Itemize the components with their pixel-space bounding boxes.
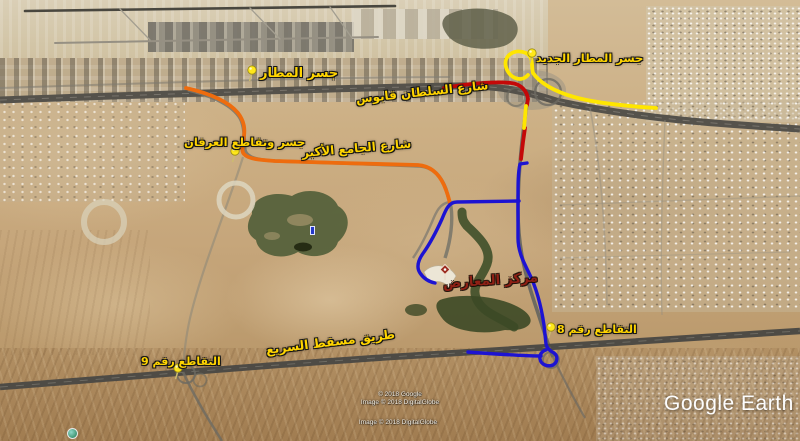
label-irfan-bridge-intersection: جسر وتقاطع العرفان: [184, 135, 305, 149]
attribution-line-1: © 2018 Google: [330, 391, 470, 399]
label-new-airport-bridge: جسر المطار الجديد: [536, 51, 643, 65]
map-attribution-secondary: Image © 2018 DigitalGlobe: [328, 419, 468, 427]
route-overlay: [0, 0, 800, 441]
route-red-south-segment: [521, 128, 525, 159]
route-yellow-south-segment: [524, 106, 526, 128]
placemark-icon[interactable]: [67, 428, 78, 439]
pushpin-icon[interactable]: [545, 322, 557, 340]
attribution-line-2: Image © 2018 DigitalGlobe: [330, 399, 470, 407]
map-canvas[interactable]: جسر المطار جسر المطار الجديد شارع السلطا…: [0, 0, 800, 441]
label-airport-bridge: جسر المطار: [260, 66, 338, 81]
google-earth-logo: Google Earth: [664, 392, 794, 416]
map-marker-icon[interactable]: [310, 226, 315, 235]
label-intersection-8: التقاطع رقم 8: [557, 323, 637, 336]
route-blue-expressway-segment: [468, 352, 541, 356]
map-attribution: © 2018 Google Image © 2018 DigitalGlobe: [330, 391, 470, 406]
pushpin-icon[interactable]: [246, 65, 258, 83]
label-intersection-9: التقاطع رقم 9: [141, 355, 221, 368]
